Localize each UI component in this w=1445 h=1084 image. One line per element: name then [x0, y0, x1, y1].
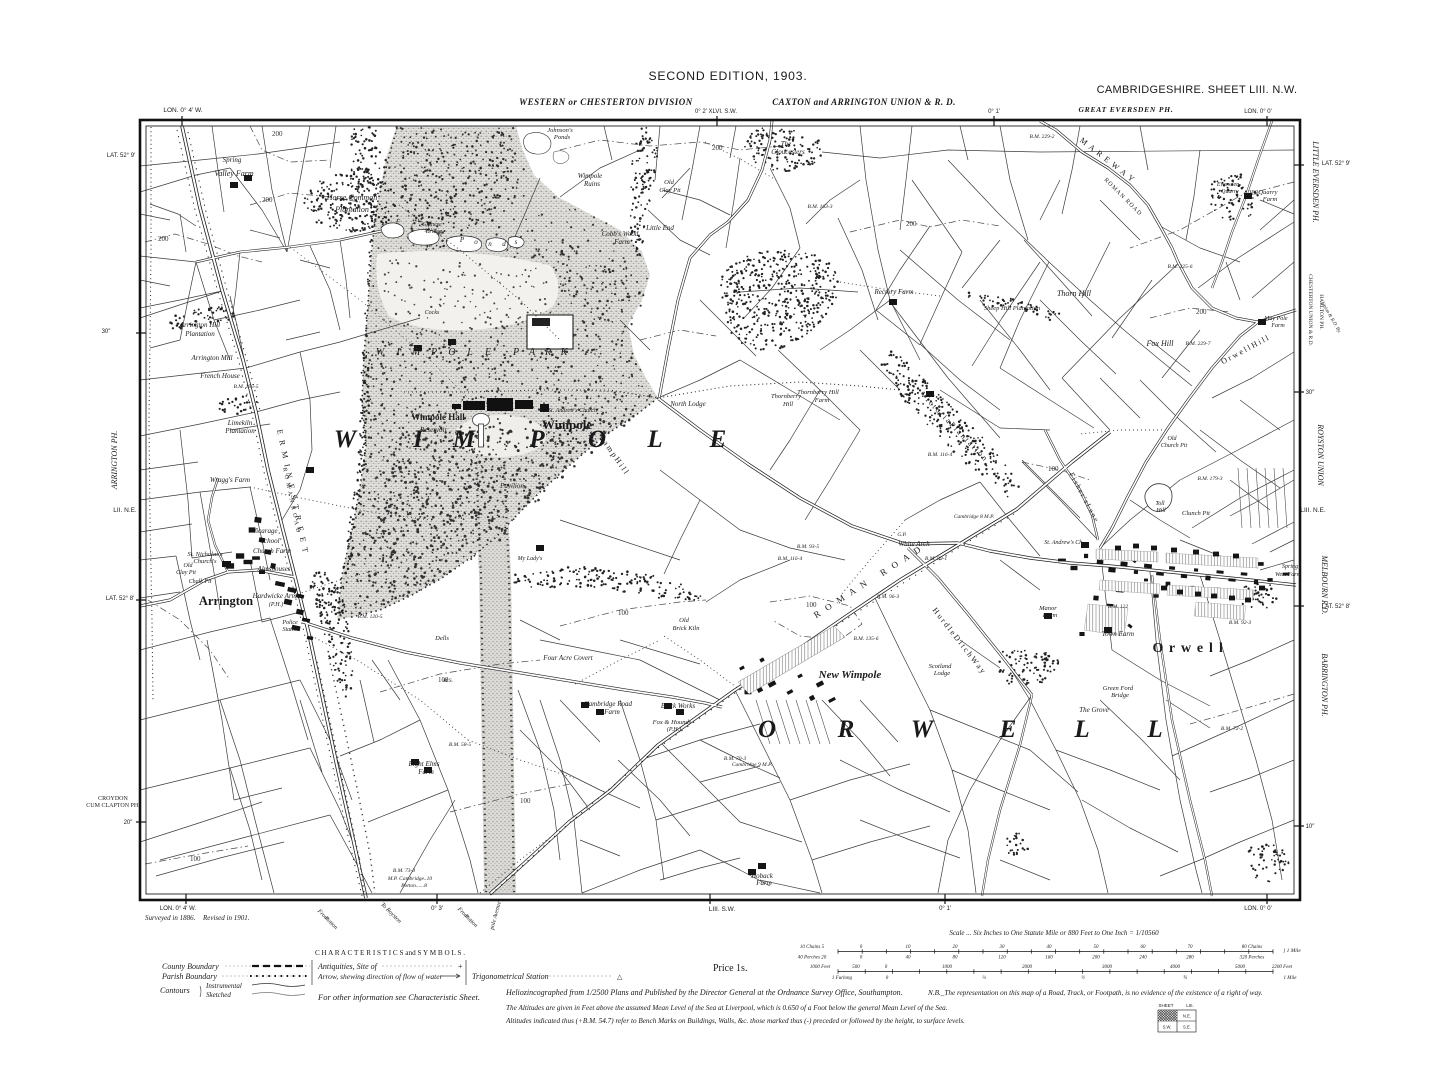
- svg-text:Reservoir: Reservoir: [419, 426, 447, 434]
- svg-text:¾: ¾: [1183, 976, 1187, 981]
- svg-text:70: 70: [1188, 945, 1194, 950]
- svg-text:Cobb's Wood: Cobb's Wood: [602, 230, 639, 238]
- svg-text:40: 40: [1047, 945, 1053, 950]
- svg-text:LIII. S.W.: LIII. S.W.: [709, 906, 736, 913]
- svg-text:½: ½: [1081, 976, 1085, 981]
- svg-text:Wimpole: Wimpole: [542, 417, 593, 432]
- svg-text:N.E.: N.E.: [1183, 1014, 1191, 1019]
- svg-text:Fox Hill: Fox Hill: [1146, 339, 1175, 348]
- svg-text:40: 40: [906, 956, 912, 961]
- svg-text:Manor: Manor: [1038, 605, 1057, 612]
- svg-text:School: School: [260, 537, 279, 545]
- svg-text:O: O: [1153, 641, 1164, 656]
- svg-text:May Pole: May Pole: [1263, 316, 1287, 322]
- svg-text:LII. N.E.: LII. N.E.: [113, 507, 137, 514]
- svg-text:North Lodge: North Lodge: [669, 400, 706, 408]
- svg-text:Dells: Dells: [434, 635, 449, 642]
- svg-text:1 Mile: 1 Mile: [1284, 976, 1298, 981]
- svg-text:80: 80: [953, 956, 959, 961]
- svg-text:LIII.: LIII.: [1186, 1003, 1194, 1008]
- svg-text:500: 500: [852, 965, 860, 970]
- svg-text:LON. 0° 0′: LON. 0° 0′: [1244, 906, 1272, 912]
- svg-text:Farm: Farm: [755, 879, 772, 887]
- svg-text:Rectory Farm: Rectory Farm: [873, 288, 913, 296]
- svg-text:LAT. 52° 9′: LAT. 52° 9′: [1322, 161, 1351, 167]
- svg-text:200: 200: [1092, 956, 1100, 961]
- svg-text:Limekiln: Limekiln: [227, 419, 253, 427]
- svg-text:M: M: [411, 347, 421, 358]
- svg-text:3000: 3000: [1102, 965, 1113, 970]
- svg-text:¼: ¼: [982, 976, 986, 981]
- svg-text:Brick Works: Brick Works: [661, 702, 695, 710]
- svg-text:LAT. 52° 8′: LAT. 52° 8′: [106, 596, 135, 602]
- svg-text:B.M. 120-5: B.M. 120-5: [358, 614, 383, 620]
- svg-text:C H A R A C T E R I S T I C S: C H A R A C T E R I S T I C S and S Y M …: [315, 949, 465, 957]
- svg-text:50: 50: [1094, 945, 1100, 950]
- svg-text:Spring: Spring: [1282, 564, 1298, 570]
- svg-text:s: s: [515, 238, 518, 246]
- svg-text:Arrington: Arrington: [199, 594, 253, 608]
- svg-text:i: i: [411, 222, 413, 230]
- svg-text:100: 100: [190, 855, 201, 863]
- svg-text:Station: Station: [282, 627, 299, 633]
- svg-text:Instrumental: Instrumental: [205, 982, 242, 990]
- svg-text:Farm: Farm: [613, 238, 630, 246]
- svg-text:F: F: [395, 218, 401, 226]
- svg-text:L: L: [466, 347, 473, 358]
- svg-text:Fox & Hounds: Fox & Hounds: [652, 719, 692, 726]
- svg-text:Cocks: Cocks: [425, 310, 440, 316]
- svg-text:LAT. 52° 8′: LAT. 52° 8′: [1322, 604, 1351, 610]
- svg-text:e: e: [1197, 641, 1203, 656]
- svg-text:Farm: Farm: [417, 768, 434, 776]
- svg-text:Plantation: Plantation: [224, 427, 255, 435]
- svg-text:B.M. 122: B.M. 122: [1108, 604, 1129, 610]
- svg-text:80 Chains: 80 Chains: [1242, 945, 1262, 950]
- svg-text:E: E: [484, 347, 491, 358]
- svg-text:St. Andrew's Ch.: St. Andrew's Ch.: [1044, 540, 1084, 546]
- svg-text:B.M. 73-3: B.M. 73-3: [393, 868, 415, 874]
- svg-text:Altitudes indicated thus (+B.M: Altitudes indicated thus (+B.M. 54.7) re…: [505, 1017, 965, 1025]
- svg-text:Old: Old: [1168, 436, 1178, 442]
- svg-text:Wragg's Farm: Wragg's Farm: [210, 476, 250, 484]
- svg-text:5000: 5000: [1235, 965, 1246, 970]
- svg-text:4000: 4000: [1170, 965, 1181, 970]
- svg-text:h: h: [438, 230, 442, 238]
- svg-text:W: W: [334, 426, 358, 453]
- svg-text:} 1 Mile: } 1 Mile: [1283, 948, 1301, 954]
- svg-text:280: 280: [1186, 956, 1194, 961]
- svg-text:Hill: Hill: [782, 401, 793, 408]
- svg-text:P: P: [512, 347, 519, 358]
- svg-text:Church Farm: Church Farm: [253, 547, 291, 555]
- svg-text:Valley Farm: Valley Farm: [214, 169, 254, 178]
- svg-text:w: w: [1181, 641, 1192, 656]
- svg-text:GREAT EVERSDEN PH.: GREAT EVERSDEN PH.: [1078, 105, 1173, 114]
- svg-text:Quarry: Quarry: [1221, 189, 1239, 195]
- svg-text:Gloucesters: Gloucesters: [771, 148, 805, 156]
- svg-text:County Boundary: County Boundary: [162, 962, 219, 971]
- svg-text:Antiquities, Site of: Antiquities, Site of: [317, 962, 379, 971]
- svg-text:Wimpole: Wimpole: [578, 172, 603, 180]
- svg-text:White Arch: White Arch: [898, 540, 930, 548]
- svg-text:△: △: [617, 973, 623, 981]
- svg-text:Cambridge Road: Cambridge Road: [584, 700, 633, 708]
- svg-text:(P.H.): (P.H.): [667, 726, 681, 733]
- svg-text:For other information see Char: For other information see Characteristic…: [317, 992, 480, 1002]
- svg-text:B.M. 135-6: B.M. 135-6: [854, 636, 879, 642]
- svg-text:Eight Elms: Eight Elms: [408, 760, 440, 768]
- svg-text:New Wimpole: New Wimpole: [818, 669, 882, 681]
- svg-text:Brick Kiln: Brick Kiln: [673, 625, 700, 632]
- svg-text:S.E.: S.E.: [1183, 1025, 1191, 1030]
- svg-text:B.M. 229-2: B.M. 229-2: [1030, 134, 1055, 140]
- svg-text:Police: Police: [281, 620, 298, 626]
- svg-text:B.M. 93-5: B.M. 93-5: [797, 544, 819, 550]
- svg-text:Arrow, shewing direction of fl: Arrow, shewing direction of flow of wate…: [317, 972, 443, 981]
- svg-text:Clay Pit: Clay Pit: [176, 570, 196, 576]
- svg-text:10 Chains 5: 10 Chains 5: [800, 945, 825, 950]
- svg-text:LIII. N.E.: LIII. N.E.: [1300, 507, 1325, 514]
- svg-text:LON. 0° 4′ W.: LON. 0° 4′ W.: [163, 106, 202, 114]
- svg-text:CAXTON and ARRINGTON UNION & R: CAXTON and ARRINGTON UNION & R. D.: [772, 97, 955, 107]
- svg-text:L: L: [1146, 716, 1162, 743]
- svg-text:20: 20: [953, 945, 959, 950]
- svg-text:CHESTERTON UNION & R.D.: CHESTERTON UNION & R.D.: [1307, 274, 1313, 346]
- svg-text:LITTLE EVERSDEN PH.: LITTLE EVERSDEN PH.: [1311, 140, 1320, 223]
- svg-text:Scotland: Scotland: [929, 663, 952, 670]
- svg-text:Toll: Toll: [1155, 501, 1164, 507]
- svg-text:E: E: [709, 426, 727, 453]
- svg-text:l: l: [1219, 641, 1223, 656]
- svg-text:A: A: [528, 347, 536, 358]
- svg-text:LON. 0° 4′ W.: LON. 0° 4′ W.: [160, 906, 197, 912]
- svg-text:SECOND EDITION, 1903.: SECOND EDITION, 1903.: [648, 69, 807, 83]
- svg-text:R: R: [544, 347, 551, 358]
- svg-text:200: 200: [906, 220, 917, 228]
- svg-text:o: o: [474, 238, 478, 246]
- svg-text:M: M: [452, 426, 476, 453]
- svg-text:B.M. 92-3: B.M. 92-3: [1229, 620, 1251, 626]
- svg-text:My Lady's: My Lady's: [517, 556, 543, 562]
- svg-text:Old: Old: [679, 617, 690, 624]
- svg-text:S.W.: S.W.: [1163, 1025, 1172, 1030]
- svg-text:West Farm: West Farm: [1275, 572, 1302, 578]
- svg-text:SHEET: SHEET: [1158, 1003, 1173, 1008]
- svg-text:Horse Common: Horse Common: [326, 193, 377, 202]
- svg-text:LAT. 52° 9′: LAT. 52° 9′: [107, 153, 136, 159]
- svg-text:LON. 0° 0′: LON. 0° 0′: [1244, 109, 1272, 115]
- svg-text:Eversden: Eversden: [1216, 182, 1239, 188]
- svg-text:10″: 10″: [1306, 824, 1316, 830]
- svg-text:Old: Old: [184, 563, 194, 569]
- svg-text:B.M. 116-4: B.M. 116-4: [928, 451, 953, 458]
- svg-text:s: s: [425, 226, 428, 234]
- svg-text:Potton......8: Potton......8: [400, 883, 427, 889]
- svg-text:Church Pit: Church Pit: [1161, 443, 1188, 449]
- svg-text:Plantation: Plantation: [184, 330, 215, 338]
- svg-text:CROYDON: CROYDON: [98, 796, 128, 802]
- svg-text:B.M. 58-5: B.M. 58-5: [449, 742, 471, 748]
- svg-text:Pavilion: Pavilion: [499, 482, 524, 490]
- svg-text:Price 1s.: Price 1s.: [713, 963, 747, 974]
- svg-text:0° 3′: 0° 3′: [431, 906, 444, 912]
- svg-text:Four Acre Covert: Four Acre Covert: [542, 654, 593, 662]
- svg-text:W: W: [911, 716, 935, 743]
- svg-text:20″: 20″: [124, 820, 134, 826]
- svg-text:N.B._The representation on thi: N.B._The representation on this map of a…: [927, 989, 1263, 997]
- svg-text:Contours: Contours: [160, 986, 190, 995]
- svg-text:30″: 30″: [1306, 390, 1316, 396]
- svg-text:L: L: [646, 426, 662, 453]
- svg-text:P: P: [459, 236, 465, 244]
- svg-text:Little End: Little End: [645, 224, 674, 232]
- svg-text:Hill: Hill: [1155, 508, 1166, 514]
- svg-text:ARRINGTON PH.: ARRINGTON PH.: [110, 431, 119, 491]
- svg-text:Lodge: Lodge: [933, 670, 950, 677]
- svg-text:Green Ford: Green Ford: [1103, 685, 1134, 692]
- svg-text:2000: 2000: [1022, 965, 1033, 970]
- svg-text:Thorn Hill: Thorn Hill: [1057, 289, 1092, 298]
- svg-text:Farm: Farm: [814, 397, 830, 404]
- svg-text:Trigonometrical Station: Trigonometrical Station: [472, 972, 549, 981]
- svg-text:1000 Feet: 1000 Feet: [810, 965, 831, 970]
- svg-text:St. Nicholas's: St. Nicholas's: [187, 551, 223, 558]
- svg-text:Parish Boundary: Parish Boundary: [161, 972, 217, 981]
- svg-text:200: 200: [158, 235, 169, 243]
- svg-text:Ponds: Ponds: [553, 134, 571, 141]
- svg-text:Almshouses: Almshouses: [256, 565, 290, 573]
- svg-text:CAMBRIDGESHIRE. SHEET LIII.: CAMBRIDGESHIRE. SHEET LIII. N.W.: [1097, 84, 1298, 96]
- svg-text:O: O: [448, 347, 455, 358]
- svg-text:M.P. Cambridge..10: M.P. Cambridge..10: [387, 876, 433, 882]
- svg-text:200: 200: [272, 130, 283, 138]
- svg-text:100: 100: [520, 797, 531, 805]
- svg-text:100: 100: [806, 601, 817, 609]
- svg-text:Clunch Pit: Clunch Pit: [1182, 510, 1210, 517]
- svg-text:Quarry: Quarry: [1258, 189, 1277, 196]
- svg-text:Farm: Farm: [603, 708, 620, 716]
- svg-text:Chalk Pit: Chalk Pit: [189, 579, 212, 585]
- svg-text:30: 30: [1000, 945, 1006, 950]
- svg-text:Scale ... Six Inches to One St: Scale ... Six Inches to One Statute Mile…: [949, 929, 1159, 937]
- svg-text:Thornberry: Thornberry: [771, 393, 801, 400]
- svg-text:French House: French House: [199, 372, 240, 380]
- svg-text:P: P: [430, 347, 437, 358]
- svg-text:0° 2′ XLVI. S.W.: 0° 2′ XLVI. S.W.: [695, 109, 737, 115]
- svg-text:CUM CLAPTON PH.: CUM CLAPTON PH.: [86, 803, 140, 809]
- svg-text:HARLTON PH.: HARLTON PH.: [1318, 294, 1324, 330]
- svg-text:Sheep Hill Plantation: Sheep Hill Plantation: [984, 305, 1040, 312]
- svg-text:10: 10: [906, 945, 912, 950]
- svg-text:l: l: [1209, 641, 1213, 656]
- svg-text:r: r: [1169, 641, 1175, 656]
- svg-text:+: +: [458, 962, 463, 971]
- svg-text:Surveyed in 1886.: Surveyed in 1886.: [145, 914, 196, 922]
- svg-text:30″: 30″: [102, 329, 112, 335]
- svg-text:R: R: [837, 716, 855, 743]
- svg-text:60: 60: [1141, 945, 1147, 950]
- svg-text:WESTERN or CHESTERTON DIVISION: WESTERN or CHESTERTON DIVISION: [519, 97, 693, 107]
- svg-text:200: 200: [712, 144, 723, 152]
- svg-text:n: n: [488, 240, 492, 248]
- svg-text:St. Andrew's Church: St. Andrew's Church: [548, 408, 597, 414]
- svg-text:L: L: [1073, 716, 1089, 743]
- svg-text:40 Perches 20: 40 Perches 20: [798, 956, 827, 961]
- svg-text:B.M. 72-2: B.M. 72-2: [1221, 726, 1243, 732]
- svg-text:1 Furlong: 1 Furlong: [832, 976, 853, 981]
- svg-text:Old: Old: [664, 179, 675, 186]
- svg-text:0° 1′: 0° 1′: [939, 906, 952, 912]
- svg-text:120: 120: [998, 956, 1006, 961]
- svg-text:200: 200: [1196, 308, 1207, 316]
- svg-text:Farm: Farm: [1042, 612, 1058, 619]
- svg-text:O: O: [758, 716, 776, 743]
- svg-text:The: The: [781, 140, 792, 148]
- svg-text:Farm: Farm: [1262, 196, 1278, 203]
- svg-text:Spring: Spring: [223, 156, 242, 164]
- svg-text:Thornberry Hill: Thornberry Hill: [797, 389, 839, 396]
- svg-text:160: 160: [1045, 956, 1053, 961]
- svg-text:(P.H.): (P.H.): [269, 601, 283, 608]
- svg-text:Heliozincographed from 1/250: Heliozincographed from 1/2500 Plans and …: [505, 988, 903, 997]
- svg-text:100: 100: [618, 609, 629, 617]
- svg-text:2200 Feet: 2200 Feet: [1272, 965, 1293, 970]
- svg-text:The Grove: The Grove: [1079, 706, 1108, 714]
- svg-text:B.M. 96-3: B.M. 96-3: [877, 594, 899, 600]
- svg-text:Cambridge 8 M.P.: Cambridge 8 M.P.: [954, 514, 994, 520]
- svg-text:E: E: [999, 716, 1017, 743]
- svg-text:B.M. 225-6: B.M. 225-6: [1168, 264, 1193, 270]
- svg-text:240: 240: [1139, 956, 1147, 961]
- svg-text:1000: 1000: [942, 965, 953, 970]
- svg-text:K: K: [560, 347, 569, 358]
- svg-text:B.M. 116-4: B.M. 116-4: [778, 555, 803, 562]
- svg-text:B.M. 179-3: B.M. 179-3: [1198, 476, 1223, 482]
- svg-text:Plantation: Plantation: [334, 205, 369, 214]
- svg-text:320 Perches: 320 Perches: [1240, 956, 1265, 961]
- svg-text:Revised in 1901.: Revised in 1901.: [202, 914, 250, 922]
- svg-text:BARRINGTON PH.: BARRINGTON PH.: [1320, 653, 1329, 716]
- svg-text:Arrington Hill: Arrington Hill: [179, 321, 220, 329]
- svg-text:Vicarage: Vicarage: [252, 527, 277, 535]
- svg-text:d: d: [502, 240, 506, 248]
- svg-text:M.S.: M.S.: [442, 678, 453, 684]
- svg-text:100: 100: [1048, 465, 1059, 473]
- svg-text:Farm: Farm: [1270, 323, 1285, 329]
- svg-text:Wimpole Hall: Wimpole Hall: [411, 412, 465, 422]
- svg-text:Clay Pit: Clay Pit: [659, 187, 681, 194]
- svg-text:B.M. 163-3: B.M. 163-3: [808, 204, 833, 210]
- svg-text:Arrington Mill: Arrington Mill: [190, 354, 232, 362]
- svg-text:B.M. 89-1: B.M. 89-1: [925, 556, 947, 562]
- svg-text:Cambridge 9 M.P.: Cambridge 9 M.P.: [732, 762, 772, 768]
- svg-text:Town Farm: Town Farm: [1102, 630, 1134, 638]
- svg-text:B.M. 195-5: B.M. 195-5: [234, 384, 259, 390]
- svg-text:B.M. 229-7: B.M. 229-7: [1186, 341, 1211, 347]
- svg-text:ROYSTON UNION: ROYSTON UNION: [1316, 423, 1325, 486]
- svg-text:Church's: Church's: [193, 558, 217, 565]
- svg-text:I: I: [395, 347, 400, 358]
- svg-text:Sketched: Sketched: [206, 991, 231, 999]
- svg-text:G.P.: G.P.: [897, 532, 906, 538]
- svg-text:Johnson's: Johnson's: [547, 127, 573, 134]
- svg-text:200: 200: [262, 196, 273, 204]
- svg-text:Bridge: Bridge: [1111, 692, 1129, 699]
- svg-text:The Altitudes are given in Fee: The Altitudes are given in Feet above th…: [506, 1004, 948, 1012]
- svg-text:Hardwicke Arms: Hardwicke Arms: [252, 592, 300, 600]
- svg-text:Ruins: Ruins: [583, 180, 600, 188]
- svg-text:0° 1′: 0° 1′: [988, 109, 1001, 115]
